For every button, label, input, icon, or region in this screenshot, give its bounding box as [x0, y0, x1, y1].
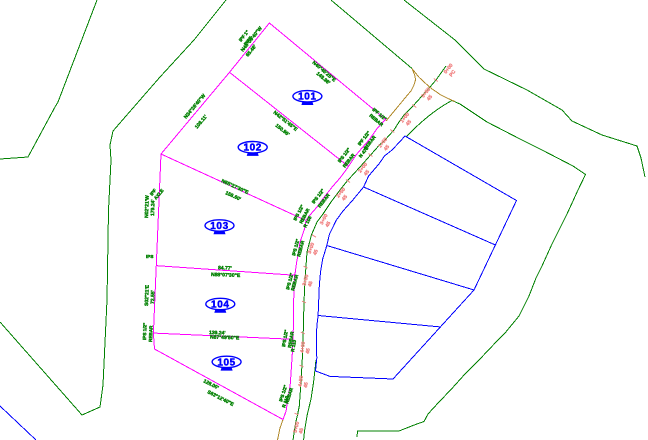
svg-text:45: 45 — [305, 348, 312, 355]
svg-text:IPS 1/2": IPS 1/2" — [142, 323, 148, 340]
svg-text:IPS: IPS — [146, 254, 153, 259]
svg-text:105: 105 — [217, 357, 236, 368]
svg-text:N88°07'30"E: N88°07'30"E — [211, 272, 241, 279]
svg-text:102: 102 — [243, 143, 262, 154]
svg-text:84.77': 84.77' — [218, 265, 232, 271]
svg-text:104: 104 — [211, 299, 230, 310]
svg-text:45: 45 — [303, 382, 310, 389]
svg-text:101: 101 — [298, 92, 317, 103]
svg-text:103: 103 — [210, 221, 229, 232]
svg-text:179.24': 179.24' — [150, 199, 157, 216]
svg-text:N87°49'50"E: N87°49'50"E — [210, 335, 240, 342]
svg-text:REBAR: REBAR — [148, 325, 154, 342]
svg-text:72.55': 72.55' — [150, 290, 156, 304]
